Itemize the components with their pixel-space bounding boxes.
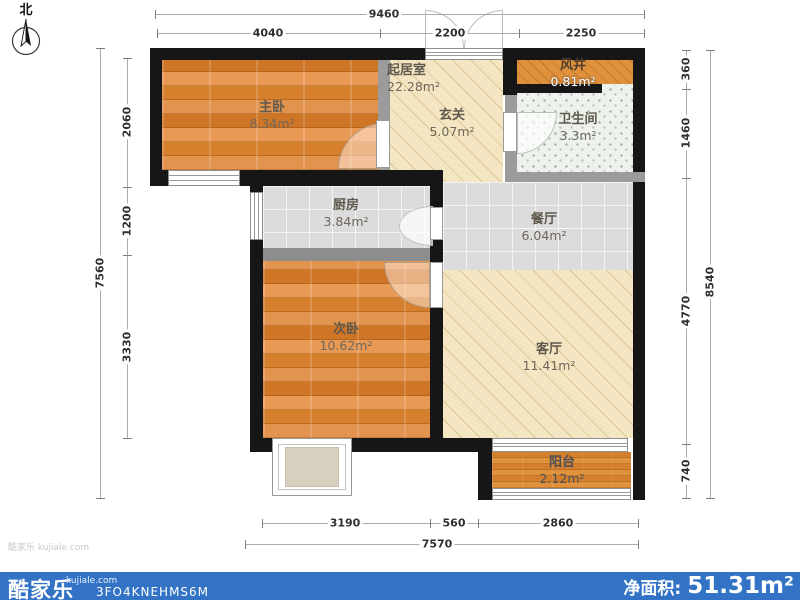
wall-segment xyxy=(443,438,478,452)
entrance-door-arc-right xyxy=(464,10,503,48)
room-name: 起居室 xyxy=(387,63,440,79)
dim-label-left-total: 7560 xyxy=(94,256,107,291)
watermark: 酷家乐 kujiale.com xyxy=(8,540,89,553)
room-area: 11.41m² xyxy=(523,358,576,374)
dim-label-top-1: 4040 xyxy=(251,27,286,40)
wall-segment xyxy=(352,438,443,452)
dim-label-left-3: 3330 xyxy=(121,330,134,365)
wall-segment xyxy=(150,48,162,186)
entrance-door-leaf xyxy=(502,10,503,48)
room-area: 6.04m² xyxy=(521,228,566,244)
room-name: 主卧 xyxy=(249,100,294,116)
room-label-bathroom: 卫生间 3.3m² xyxy=(558,112,597,144)
dim-label-right-2: 1460 xyxy=(680,116,693,151)
partition-wall xyxy=(512,172,645,182)
dim-tick xyxy=(682,50,691,51)
room-area: 10.62m² xyxy=(320,338,373,354)
compass-north-label: 北 xyxy=(6,4,46,17)
dim-tick xyxy=(644,29,645,38)
room-area: 3.84m² xyxy=(323,214,368,230)
dim-label-right-1: 360 xyxy=(680,56,693,83)
entrance-threshold xyxy=(425,48,503,60)
dim-tick xyxy=(430,519,431,528)
dim-label-right-3: 4770 xyxy=(680,294,693,329)
dim-label-right-total: 8540 xyxy=(704,265,717,300)
room-area: 8.34m² xyxy=(249,116,294,132)
brand-logo: 酷家乐 xyxy=(8,574,74,600)
dim-tick xyxy=(96,48,105,49)
room-name: 玄关 xyxy=(429,108,474,124)
room-label-air-shaft: 风井 0.81m² xyxy=(550,58,595,90)
floorplan-canvas: 主卧 8.34m² 起居室 22.28m² 玄关 5.07m² 风井 0.81m… xyxy=(0,0,800,600)
dim-tick xyxy=(157,29,158,38)
dim-label-right-4: 740 xyxy=(680,458,693,485)
dim-label-top-2: 2200 xyxy=(433,27,468,40)
dim-tick xyxy=(682,498,691,499)
dim-label-left-2: 1200 xyxy=(121,204,134,239)
dim-tick xyxy=(644,10,645,19)
room-name: 次卧 xyxy=(320,322,373,338)
room-name: 餐厅 xyxy=(521,212,566,228)
dim-tick xyxy=(96,498,105,499)
wall-segment xyxy=(250,438,272,452)
room-label-kitchen: 厨房 3.84m² xyxy=(323,198,368,230)
window-living-balcony xyxy=(492,438,628,452)
partition-wall xyxy=(263,248,430,261)
dim-tick xyxy=(123,255,132,256)
room-label-balcony: 阳台 2.12m² xyxy=(539,455,584,487)
wall-segment xyxy=(150,48,425,60)
room-name: 厨房 xyxy=(323,198,368,214)
dim-tick xyxy=(245,540,246,549)
net-area-label: 净面积: xyxy=(623,574,681,599)
dim-tick xyxy=(155,10,156,19)
room-label-hall: 起居室 22.28m² xyxy=(387,63,440,95)
dim-tick xyxy=(380,29,381,38)
room-label-entry: 玄关 5.07m² xyxy=(429,108,474,140)
dim-label-top-total: 9460 xyxy=(367,8,402,21)
dim-tick xyxy=(638,540,639,549)
kitchen-door xyxy=(430,207,443,240)
room-name: 风井 xyxy=(550,58,595,74)
dim-tick xyxy=(123,187,132,188)
dim-label-bottom-total: 7570 xyxy=(420,538,455,551)
dim-label-top-3: 2250 xyxy=(564,27,599,40)
bay-window-sill xyxy=(285,447,339,487)
dim-tick xyxy=(706,50,715,51)
dim-tick xyxy=(478,519,479,528)
room-name: 阳台 xyxy=(539,455,584,471)
room-area: 22.28m² xyxy=(387,79,440,95)
partition-wall xyxy=(505,95,517,112)
dim-tick xyxy=(682,178,691,179)
dim-tick xyxy=(682,444,691,445)
dim-tick xyxy=(638,519,639,528)
dim-tick xyxy=(262,519,263,528)
wall-segment xyxy=(478,438,492,500)
wall-segment xyxy=(503,48,517,95)
dim-label-bottom-3: 2860 xyxy=(541,517,576,530)
compass: 北 xyxy=(6,4,46,60)
window-kitchen xyxy=(250,192,263,240)
net-area-value: 51.31m² xyxy=(687,573,794,599)
net-area: 净面积: 51.31m² xyxy=(623,572,794,600)
room-area: 5.07m² xyxy=(429,124,474,140)
plan-code: 3FO4KNEHMS6M xyxy=(96,585,209,599)
dim-label-bottom-1: 3190 xyxy=(328,517,363,530)
bay-window xyxy=(272,438,352,496)
room-label-dining: 餐厅 6.04m² xyxy=(521,212,566,244)
room-name: 客厅 xyxy=(523,342,576,358)
dim-label-left-1: 2060 xyxy=(121,105,134,140)
room-area: 3.3m² xyxy=(558,128,597,144)
room-label-living: 客厅 11.41m² xyxy=(523,342,576,374)
dim-label-bottom-2: 560 xyxy=(441,517,468,530)
window-master-bedroom xyxy=(168,170,240,186)
window-balcony-rail xyxy=(492,488,631,500)
room-area: 0.81m² xyxy=(550,74,595,90)
dim-tick xyxy=(682,89,691,90)
bathroom-door xyxy=(503,112,517,152)
entrance-door-leaf xyxy=(425,10,426,48)
footer-bar: 酷家乐 kujiale.com 3FO4KNEHMS6M 净面积: 51.31m… xyxy=(0,572,800,600)
compass-needle-icon xyxy=(8,17,44,59)
master-bedroom-door xyxy=(376,120,390,168)
dim-tick xyxy=(706,498,715,499)
room-area: 2.12m² xyxy=(539,471,584,487)
room-label-second-bedroom: 次卧 10.62m² xyxy=(320,322,373,354)
room-label-master-bedroom: 主卧 8.34m² xyxy=(249,100,294,132)
room-name: 卫生间 xyxy=(558,112,597,128)
dim-tick xyxy=(123,58,132,59)
wall-segment xyxy=(633,48,645,500)
dim-tick xyxy=(123,438,132,439)
dim-tick xyxy=(519,29,520,38)
second-bedroom-door xyxy=(430,262,443,308)
